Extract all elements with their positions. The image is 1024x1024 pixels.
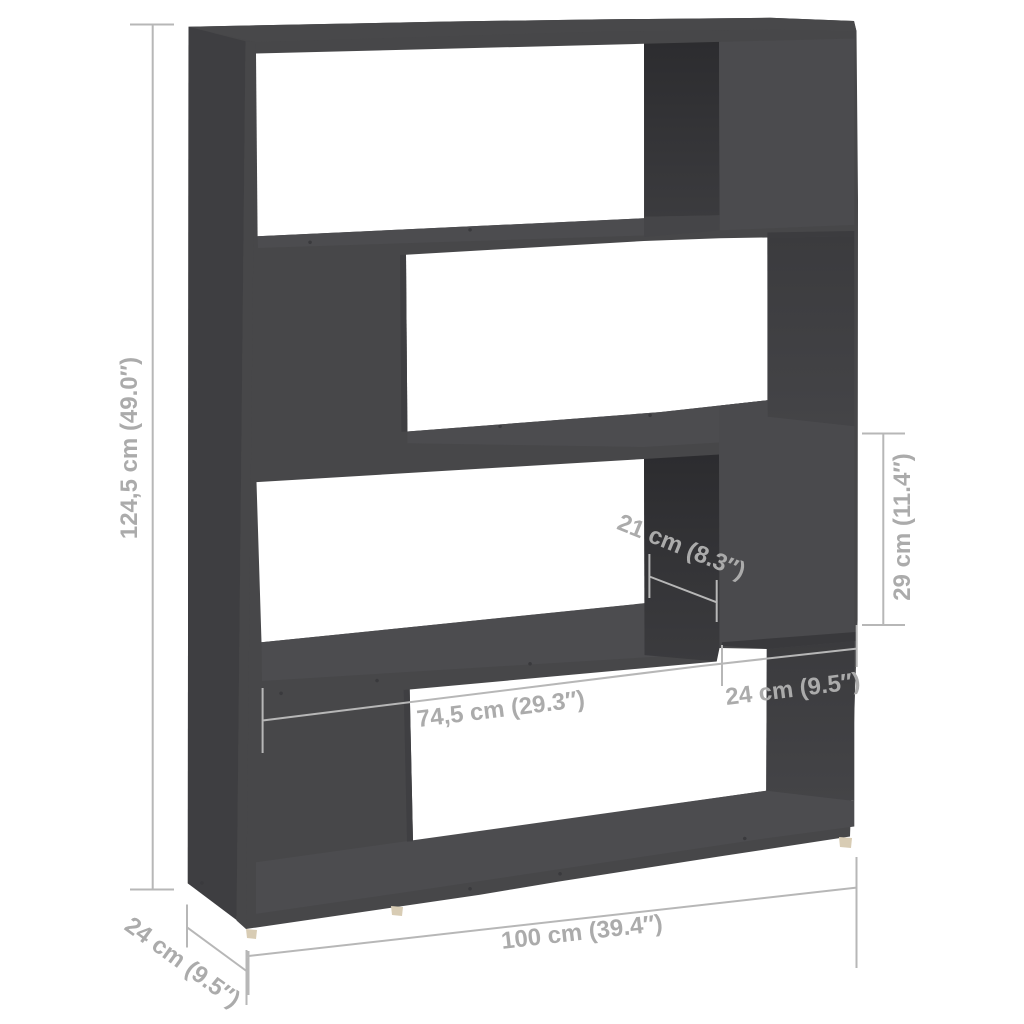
svg-text:29 cm (11.4″): 29 cm (11.4″): [889, 453, 916, 601]
svg-text:124,5 cm (49.0″): 124,5 cm (49.0″): [116, 357, 143, 539]
